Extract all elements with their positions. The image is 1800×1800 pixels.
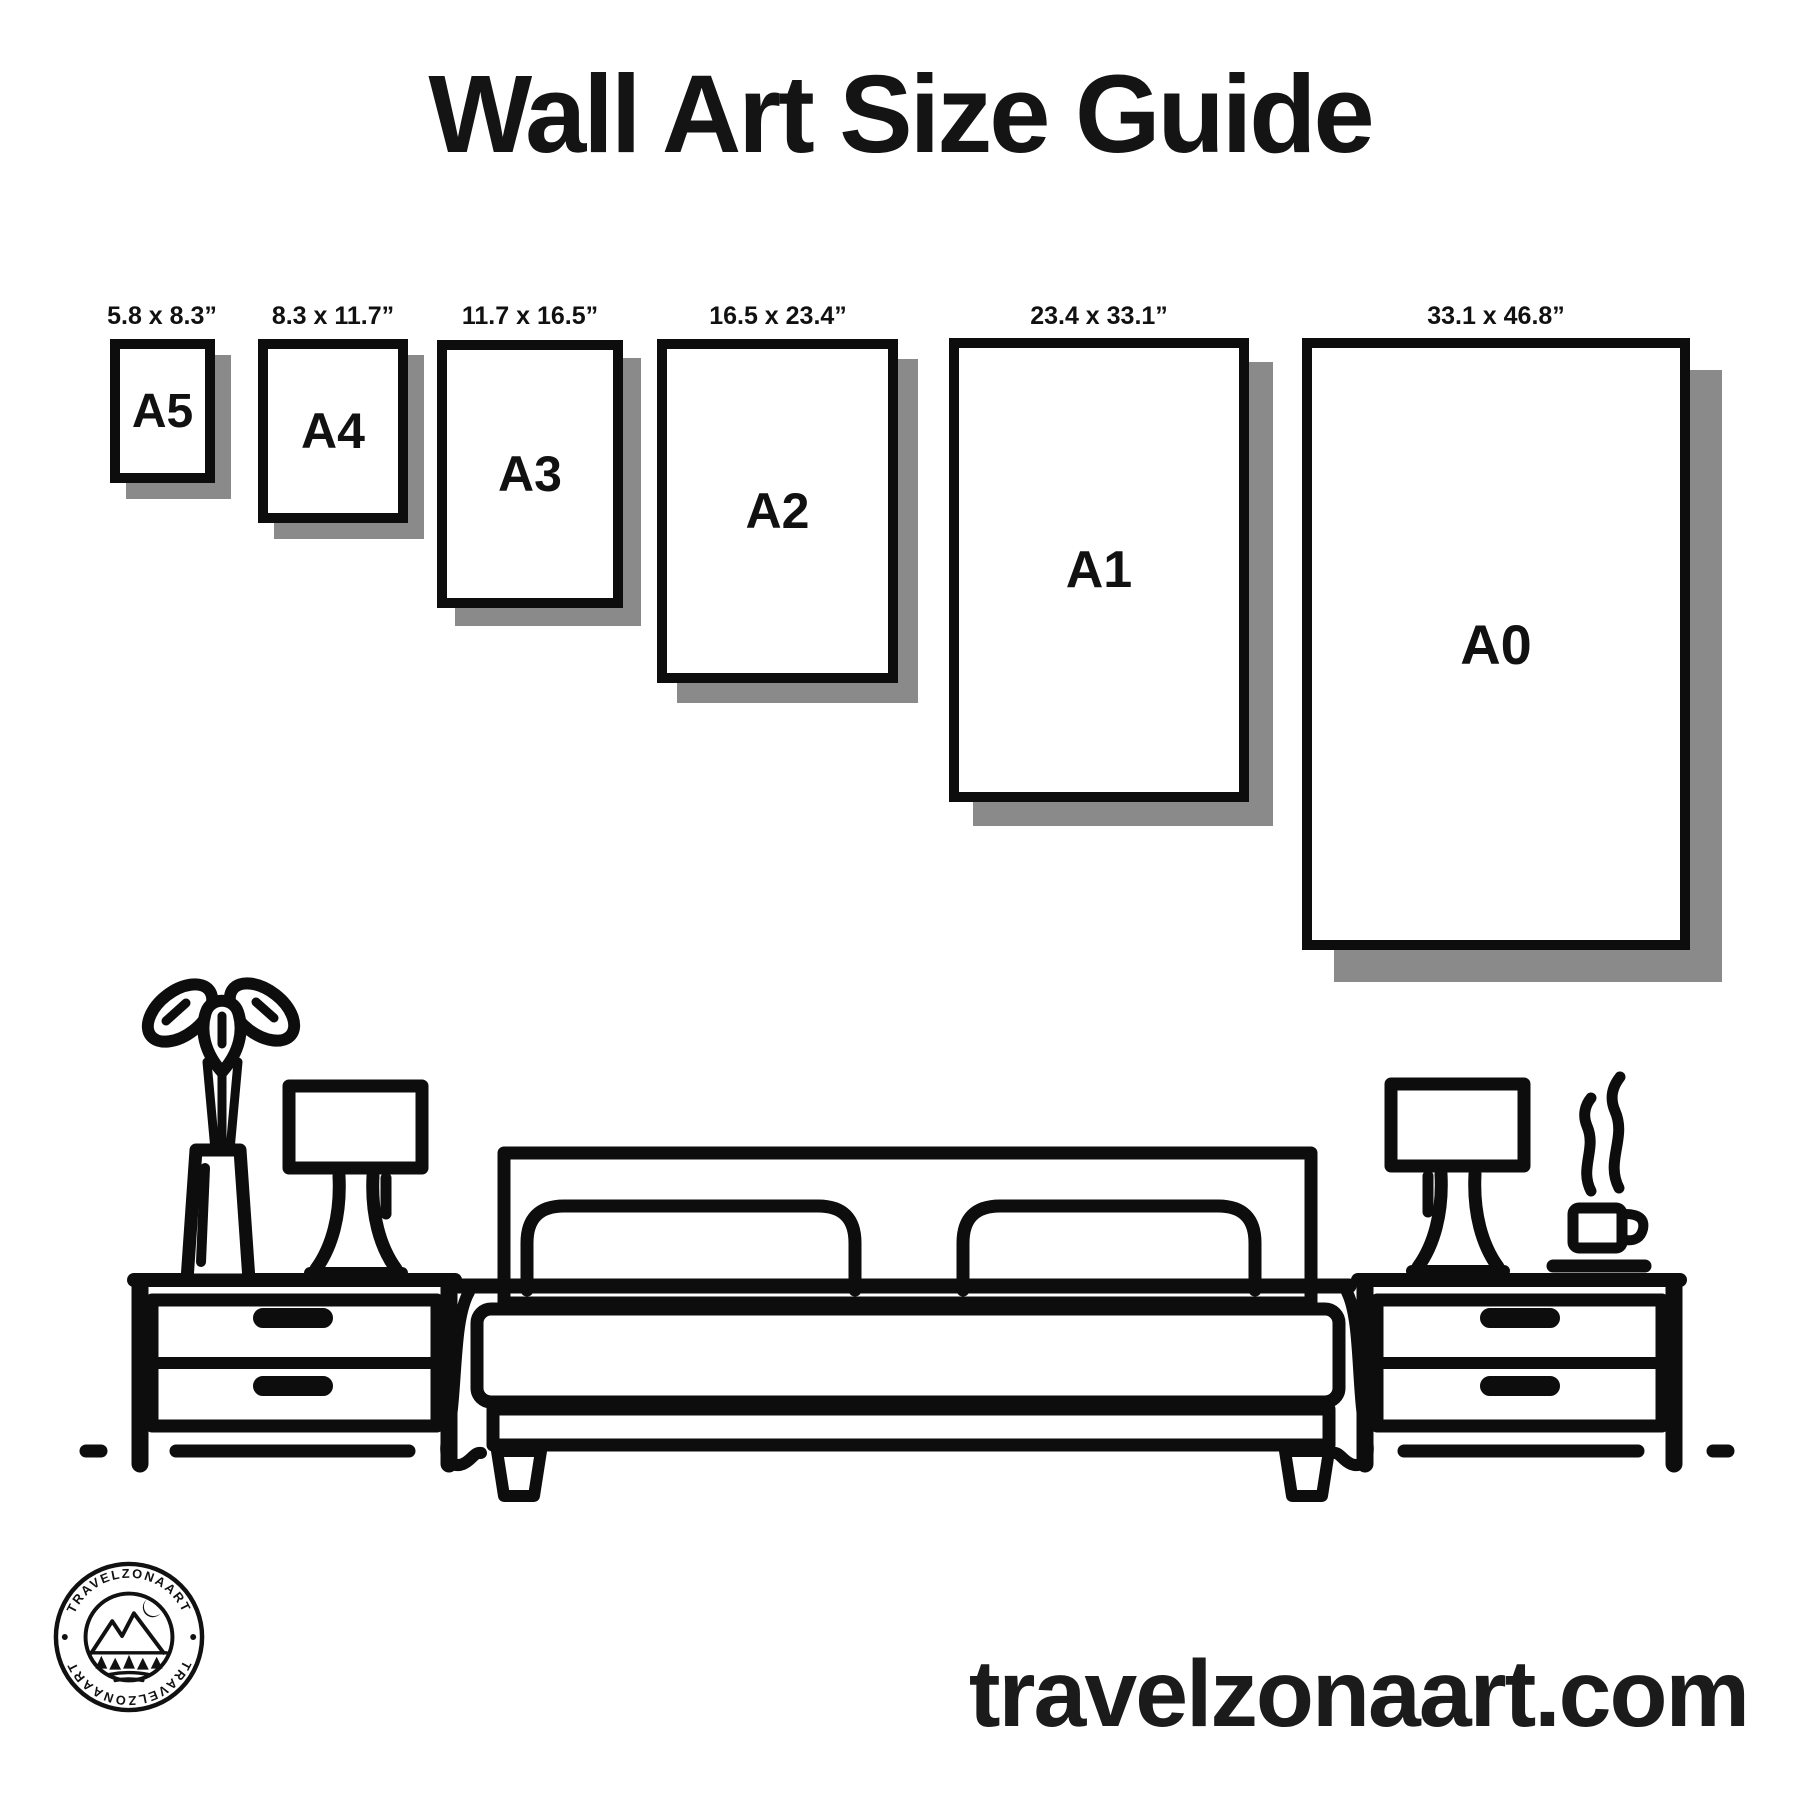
plant-vase-icon — [137, 972, 304, 1280]
table-lamp-left-icon — [289, 1086, 422, 1273]
drawer-handle — [1485, 1381, 1555, 1391]
drawer-handle — [258, 1381, 328, 1391]
brand-logo: TRAVELZONAART TRAVELZONAART — [50, 1558, 208, 1716]
pine-trees-icon — [95, 1655, 162, 1670]
cup-body — [1573, 1208, 1622, 1248]
size-frame-a2: A2 — [657, 339, 898, 683]
size-code-a2: A2 — [746, 482, 810, 540]
size-code-a4: A4 — [301, 402, 365, 460]
size-dimensions-a0: 33.1 x 46.8” — [1346, 302, 1646, 331]
water-waves-icon — [109, 1673, 149, 1675]
size-code-a1: A1 — [1066, 540, 1132, 600]
leaf — [219, 972, 304, 1052]
vase-detail — [201, 1168, 205, 1262]
drawer-handle — [1485, 1313, 1555, 1323]
mattress-front — [477, 1309, 1339, 1402]
bed-leg — [1285, 1451, 1329, 1496]
table-lamp-right-icon — [1391, 1084, 1524, 1271]
drawer-box — [1377, 1300, 1662, 1426]
bed-base — [493, 1409, 1329, 1445]
cup-handle — [1625, 1214, 1643, 1240]
drawer-handle — [258, 1313, 328, 1323]
logo-dot-right — [190, 1634, 196, 1640]
plant-stems — [207, 1062, 238, 1150]
leaf-vein — [256, 1002, 274, 1018]
size-frame-a0: A0 — [1302, 338, 1690, 950]
headboard — [504, 1153, 1311, 1303]
pillow — [527, 1206, 855, 1290]
page-title: Wall Art Size Guide — [0, 52, 1800, 179]
size-code-a3: A3 — [498, 445, 562, 503]
lamp-stem — [316, 1176, 396, 1269]
coffee-cup-icon — [1553, 1077, 1645, 1266]
size-code-a5: A5 — [132, 384, 193, 439]
leaf — [203, 1001, 240, 1072]
lamp-stem — [1418, 1174, 1498, 1267]
blanket-drape-left — [446, 1292, 481, 1465]
logo-outer-ring — [56, 1564, 202, 1710]
size-frame-a5: A5 — [110, 339, 215, 483]
size-dimensions-a2: 16.5 x 23.4” — [628, 302, 928, 331]
logo-mountain-scene — [90, 1599, 167, 1680]
size-frame-a3: A3 — [437, 340, 623, 608]
size-frame-a4: A4 — [258, 339, 408, 523]
leaf-vein — [166, 1003, 186, 1021]
water-waves-icon — [115, 1679, 143, 1680]
vase — [187, 1150, 249, 1280]
nightstand-left-icon — [134, 1280, 455, 1464]
nightstand-right-icon — [1358, 1280, 1680, 1464]
website-url: travelzonaart.com — [969, 1640, 1748, 1749]
size-frame-a1: A1 — [949, 338, 1249, 802]
lamp-shade — [289, 1086, 422, 1168]
bed-icon — [446, 1153, 1368, 1496]
blanket-drape-right — [1333, 1292, 1368, 1465]
size-code-a0: A0 — [1460, 612, 1532, 677]
size-dimensions-a1: 23.4 x 33.1” — [949, 302, 1249, 331]
logo-text-top: TRAVELZONAART — [64, 1566, 195, 1616]
steam-icon — [1585, 1098, 1591, 1191]
bed-leg — [497, 1451, 541, 1496]
steam-icon — [1612, 1077, 1620, 1188]
leaf — [137, 973, 222, 1053]
logo-dot-left — [62, 1634, 68, 1640]
size-guide-poster: Wall Art Size Guide 5.8 x 8.3” 8.3 x 11.… — [0, 0, 1800, 1800]
drawer-box — [152, 1300, 437, 1426]
lamp-shade — [1391, 1084, 1524, 1166]
pillow — [963, 1206, 1255, 1290]
mountains-icon — [91, 1613, 163, 1653]
